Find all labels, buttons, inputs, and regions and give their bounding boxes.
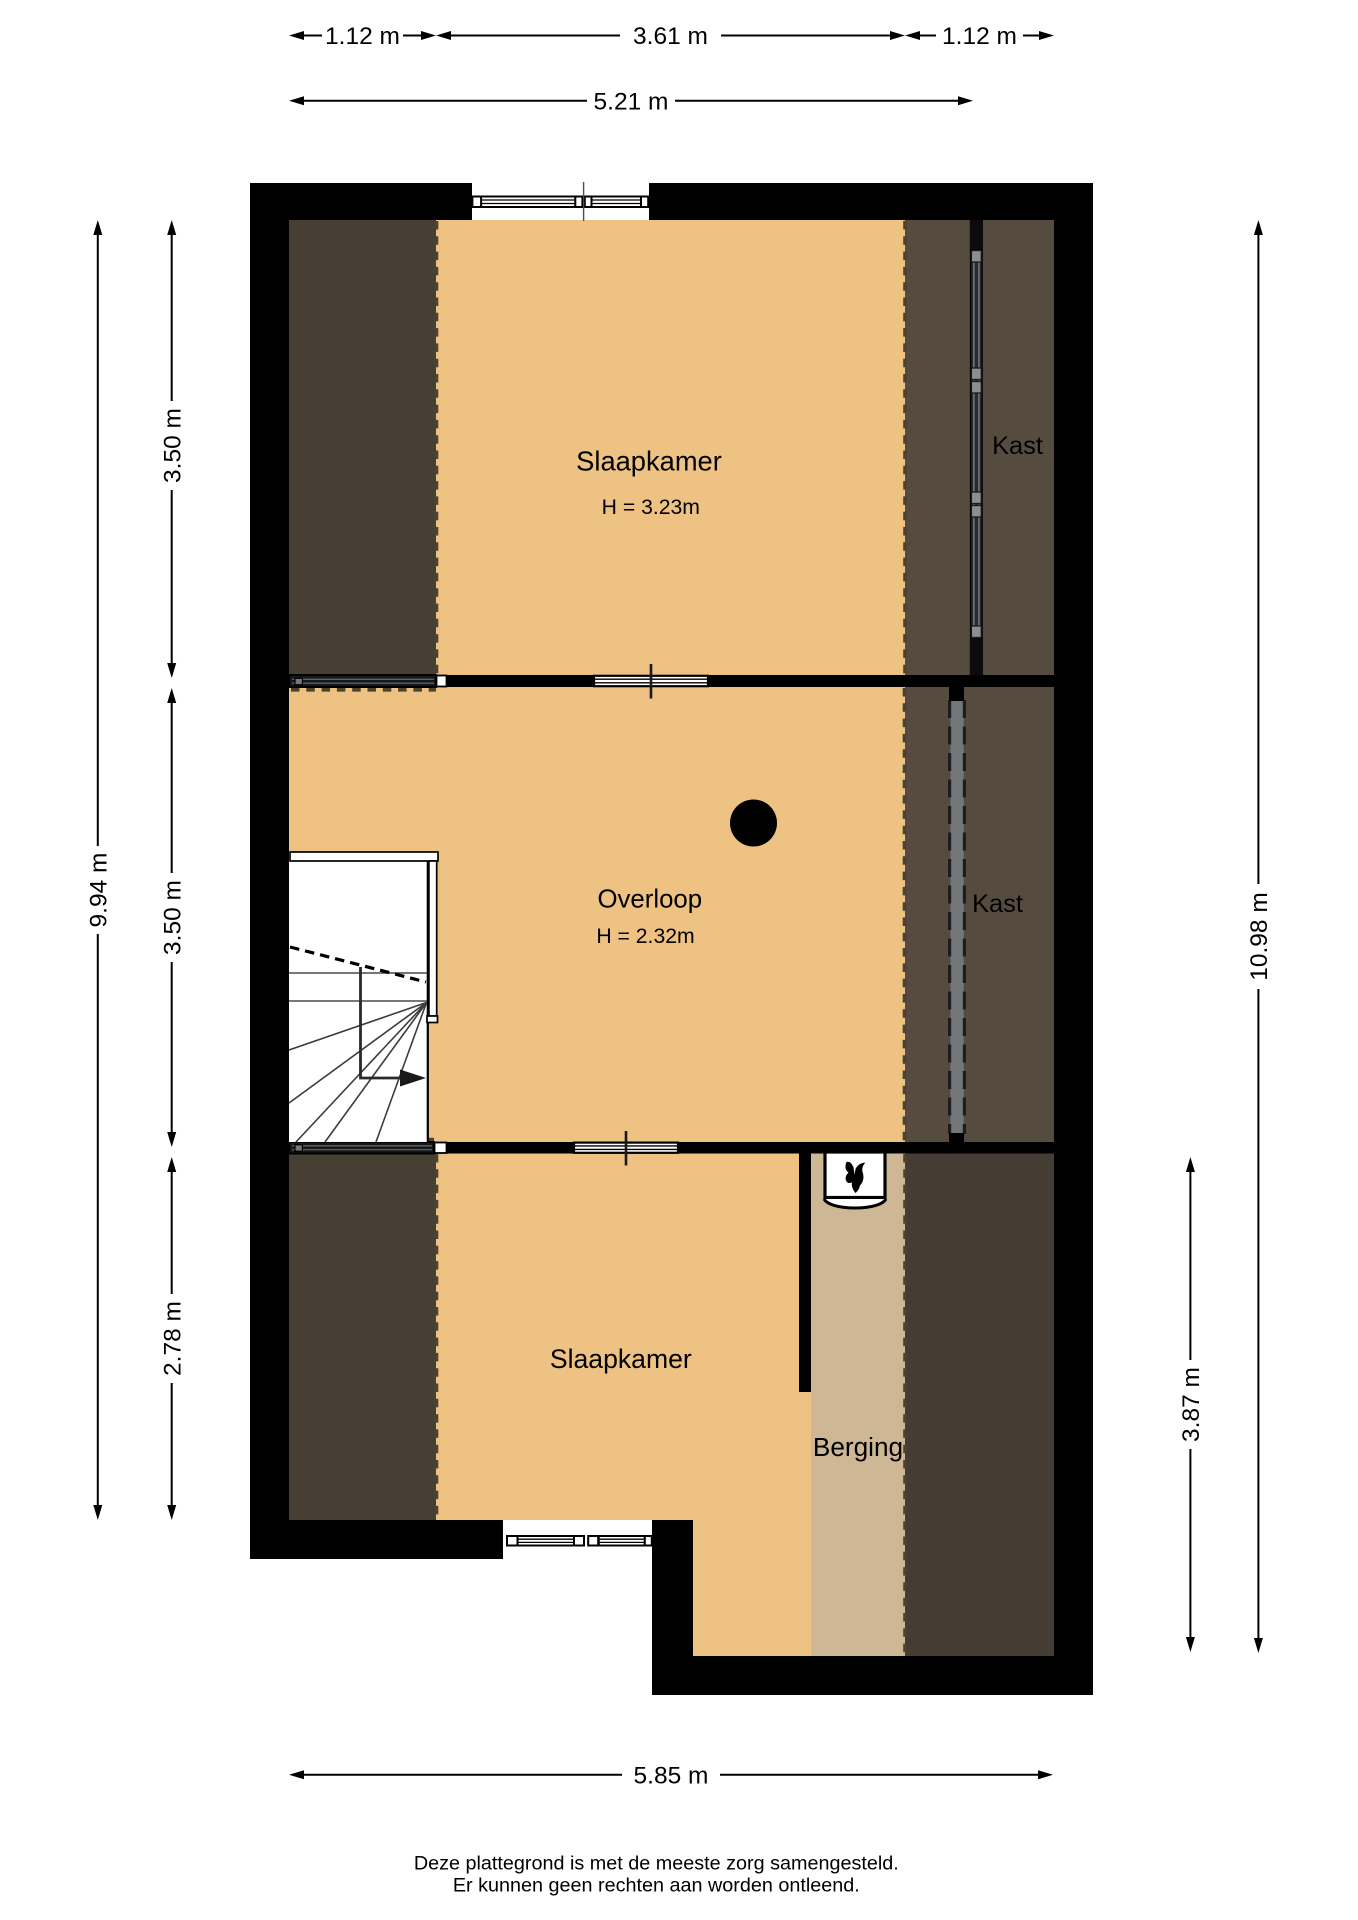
svg-text:5.85 m: 5.85 m — [634, 1763, 709, 1790]
svg-text:H = 2.32m: H = 2.32m — [596, 925, 694, 948]
svg-text:2.78 m: 2.78 m — [159, 1301, 186, 1376]
svg-text:10.98 m: 10.98 m — [1246, 892, 1273, 981]
svg-text:3.61 m: 3.61 m — [633, 23, 708, 50]
svg-text:H = 3.23m: H = 3.23m — [602, 496, 700, 519]
svg-text:3.50 m: 3.50 m — [159, 880, 186, 955]
svg-text:Overloop: Overloop — [597, 886, 702, 914]
svg-text:Deze plattegrond is met de mee: Deze plattegrond is met de meeste zorg s… — [414, 1853, 899, 1875]
svg-text:9.94 m: 9.94 m — [86, 853, 113, 928]
svg-text:1.12 m: 1.12 m — [325, 23, 400, 50]
svg-text:Berging: Berging — [813, 1432, 903, 1462]
svg-text:1.12 m: 1.12 m — [942, 23, 1017, 50]
svg-text:Kast: Kast — [972, 890, 1023, 918]
svg-text:Slaapkamer: Slaapkamer — [550, 1344, 692, 1374]
svg-text:3.50 m: 3.50 m — [159, 408, 186, 483]
svg-text:Er kunnen geen rechten aan wor: Er kunnen geen rechten aan worden ontlee… — [453, 1874, 860, 1896]
svg-text:Slaapkamer: Slaapkamer — [576, 446, 722, 477]
svg-text:Kast: Kast — [992, 432, 1043, 460]
svg-text:3.87 m: 3.87 m — [1178, 1367, 1205, 1442]
svg-text:5.21 m: 5.21 m — [594, 89, 669, 116]
